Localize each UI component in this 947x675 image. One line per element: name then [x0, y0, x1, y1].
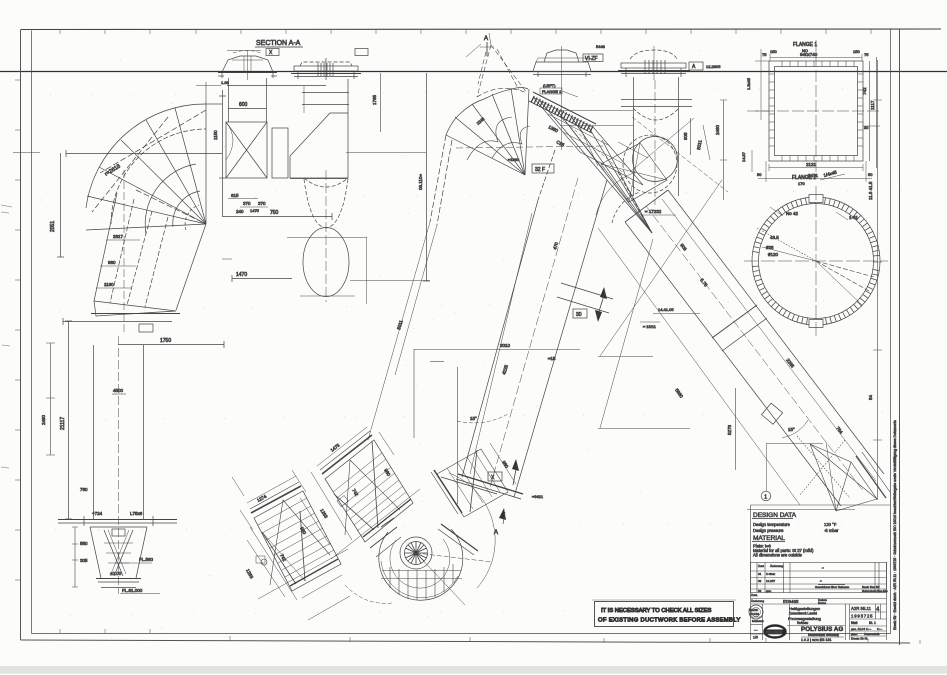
- svg-text:FL.81.000: FL.81.000: [122, 588, 143, 593]
- svg-text:VI-ZF: VI-ZF: [585, 56, 598, 62]
- svg-text:32 F: 32 F: [535, 167, 545, 173]
- svg-text:02: 02: [758, 579, 762, 583]
- svg-text:Weitergabe sowie Vervielfältig: Weitergabe sowie Vervielfältigung dieses…: [893, 420, 897, 500]
- svg-text:2460: 2460: [715, 124, 720, 135]
- svg-text:1475: 1475: [250, 208, 260, 213]
- svg-text:Schw.Gew.Neu.Etc: Schw.Gew.Neu.Etc: [862, 589, 888, 593]
- svg-text:+724: +724: [92, 511, 103, 516]
- svg-text:940x740: 940x740: [800, 52, 818, 57]
- svg-text:Maßstab: Maßstab: [752, 619, 764, 623]
- svg-text:1-41: 1-41: [849, 215, 859, 220]
- svg-text:±0.00: ±0.00: [110, 571, 122, 576]
- svg-text:FL.560: FL.560: [139, 557, 154, 562]
- svg-text:2617: 2617: [113, 234, 124, 239]
- svg-text:2051: 2051: [50, 221, 56, 232]
- svg-text:1150: 1150: [213, 130, 218, 140]
- svg-text:1117: 1117: [870, 100, 875, 110]
- svg-text:DESIGN DATA: DESIGN DATA: [753, 512, 797, 519]
- svg-text:3010: 3010: [500, 343, 511, 348]
- svg-text:14.287: 14.287: [766, 579, 776, 583]
- svg-text:03: 03: [758, 589, 762, 593]
- svg-text:Design temperature: Design temperature: [753, 522, 790, 527]
- svg-text:POLYSIUS: POLYSIUS: [766, 631, 783, 635]
- svg-text:600: 600: [239, 102, 248, 108]
- svg-text:1750: 1750: [160, 338, 171, 344]
- svg-text:Design pressure: Design pressure: [753, 528, 784, 533]
- svg-text:#28: #28: [766, 245, 774, 250]
- svg-text:Änderung: Änderung: [770, 564, 783, 568]
- svg-text:1470: 1470: [236, 272, 247, 278]
- svg-text:5278: 5278: [727, 424, 732, 435]
- svg-text:150: 150: [770, 49, 777, 54]
- svg-text:IT IS NECESSARY TO CHECK ALL S: IT IS NECESSARY TO CHECK ALL SIZES: [601, 608, 712, 614]
- svg-text:1765: 1765: [372, 94, 377, 105]
- svg-text:120 °F: 120 °F: [824, 522, 837, 527]
- svg-text:305: 305: [80, 558, 88, 563]
- svg-text:Heißgasleitungen: Heißgasleitungen: [789, 606, 820, 611]
- svg-text:240: 240: [236, 209, 244, 214]
- svg-text:4500: 4500: [113, 388, 124, 393]
- svg-text:75: 75: [864, 52, 869, 57]
- svg-text:(LEFT): (LEFT): [543, 83, 556, 88]
- svg-text:960: 960: [108, 260, 116, 265]
- svg-text:E09468: E09468: [783, 599, 799, 604]
- svg-text:SECTION A-A: SECTION A-A: [256, 40, 301, 47]
- svg-text:No 42: No 42: [786, 211, 799, 216]
- svg-text:50: 50: [757, 172, 762, 177]
- svg-text:POLYSIUS AG: POLYSIUS AG: [801, 626, 843, 633]
- svg-text:Gezeichnet über Rahmen: Gezeichnet über Rahmen: [815, 585, 850, 589]
- svg-text:A2R 55.11: A2R 55.11: [851, 606, 872, 611]
- svg-text:MATERIAL: MATERIAL: [753, 535, 785, 542]
- svg-text:≈1960: ≈1960: [508, 157, 520, 162]
- svg-text:≈6421: ≈6421: [532, 494, 544, 499]
- svg-text:01: 01: [758, 572, 762, 576]
- svg-text:370: 370: [243, 201, 251, 206]
- svg-text:Bl. 1: Bl. 1: [869, 621, 876, 625]
- svg-text:U-Stck: U-Stck: [766, 572, 776, 576]
- svg-text:Unterschrift: Unterschrift: [864, 632, 880, 636]
- svg-text:14.87: 14.87: [741, 151, 746, 162]
- svg-text:FLANGE 1: FLANGE 1: [542, 89, 562, 94]
- svg-text:21117: 21117: [60, 417, 66, 430]
- svg-text:84: 84: [868, 394, 873, 400]
- svg-text:1/5: 1/5: [753, 636, 758, 640]
- svg-text:Neubeckum Germany: Neubeckum Germany: [808, 633, 839, 637]
- svg-text:Änderung: Änderung: [751, 599, 764, 603]
- svg-text:All dimensions are outside: All dimensions are outside: [753, 553, 803, 558]
- svg-text:1 A 2 | ezm ES 181: 1 A 2 | ezm ES 181: [801, 638, 832, 642]
- svg-text:15°: 15°: [470, 416, 477, 421]
- svg-text:C—: C—: [877, 627, 882, 631]
- svg-text:15°: 15°: [788, 427, 795, 432]
- svg-text:50: 50: [868, 172, 873, 177]
- svg-text:908: 908: [683, 132, 688, 140]
- svg-text:615: 615: [231, 193, 239, 198]
- svg-text:Rohbau: Rohbau: [797, 621, 808, 625]
- svg-text:150: 150: [853, 49, 860, 54]
- svg-text:≈15: ≈15: [548, 356, 556, 361]
- svg-text:NORM: NORM: [750, 612, 760, 616]
- svg-text:14.41.05: 14.41.05: [658, 307, 674, 312]
- svg-text:43.5: 43.5: [770, 235, 779, 240]
- svg-text:—: —: [754, 628, 758, 632]
- svg-text:5448: 5448: [596, 44, 606, 49]
- svg-text:C—: C—: [866, 627, 871, 631]
- svg-text:gez. 12.04: gez. 12.04: [851, 627, 865, 631]
- svg-text:Blatt: Blatt: [851, 621, 857, 625]
- svg-text:750: 750: [270, 210, 279, 216]
- svg-text:170: 170: [798, 181, 805, 186]
- svg-text:Zementwerk Laudel: Zementwerk Laudel: [789, 612, 817, 616]
- svg-text:09.110=: 09.110=: [418, 174, 423, 190]
- svg-text:1: 1: [764, 494, 767, 500]
- svg-text:11.6 41.5: 11.6 41.5: [868, 181, 873, 200]
- svg-text:Zust: Zust: [758, 564, 764, 568]
- svg-text:Ersatz für Bl.: Ersatz für Bl.: [851, 637, 868, 641]
- svg-text:Name: Name: [818, 601, 826, 605]
- svg-text:760: 760: [80, 487, 88, 492]
- svg-text:75: 75: [762, 52, 767, 57]
- svg-text:OF EXISTING DUCTWORK BEFORE AS: OF EXISTING DUCTWORK BEFORE ASSEMBLY: [598, 618, 741, 624]
- svg-text:30: 30: [576, 312, 582, 318]
- svg-text:742: 742: [862, 87, 867, 95]
- svg-text:gepr.: gepr.: [851, 632, 858, 636]
- svg-text:2121: 2121: [806, 162, 817, 167]
- svg-text:≈ 15/11: ≈ 15/11: [643, 324, 657, 329]
- svg-text:1.5x45: 1.5x45: [746, 77, 751, 90]
- svg-text:gez.: gez.: [766, 589, 772, 593]
- svg-text:370: 370: [258, 201, 266, 206]
- svg-text:A: A: [484, 36, 488, 42]
- svg-text:30: 30: [864, 125, 869, 130]
- svg-text:Ersatz für · Ersetzt durch: Ersatz für · Ersetzt durch · A2R 55.11 ·…: [893, 500, 897, 630]
- svg-text:550: 550: [80, 541, 88, 546]
- svg-text:1993725: 1993725: [851, 614, 873, 619]
- svg-text:L75x6: L75x6: [130, 511, 143, 516]
- svg-text:-5 mbar: -5 mbar: [824, 528, 839, 533]
- svg-text:1190: 1190: [104, 282, 114, 287]
- svg-text:Zust.: Zust.: [751, 593, 758, 597]
- svg-text:≈ 17232: ≈ 17232: [645, 209, 662, 214]
- svg-text:#120: #120: [768, 252, 779, 257]
- svg-text:12.2805: 12.2805: [706, 64, 721, 69]
